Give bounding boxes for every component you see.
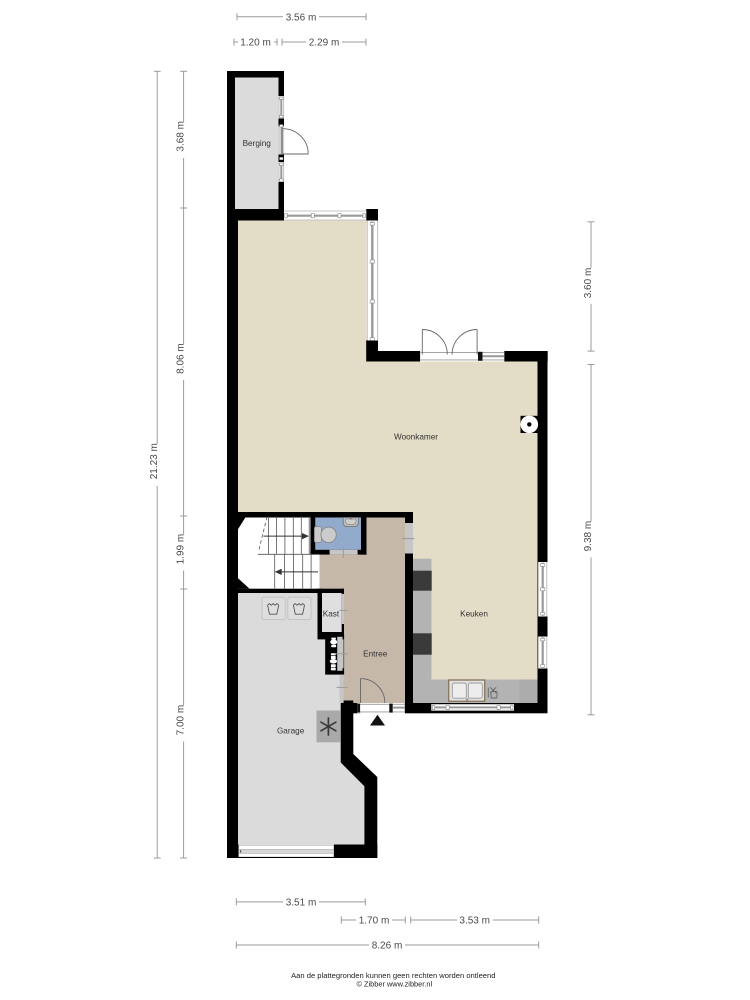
svg-text:1.70 m: 1.70 m (359, 916, 390, 927)
svg-text:8.06 m: 8.06 m (176, 343, 187, 374)
svg-text:Woonkamer: Woonkamer (394, 433, 438, 442)
svg-text:© Zibber www.zibber.nl: © Zibber www.zibber.nl (356, 980, 432, 989)
svg-text:3.51 m: 3.51 m (286, 897, 317, 908)
svg-text:8.26 m: 8.26 m (372, 941, 403, 952)
svg-text:1.20 m: 1.20 m (240, 38, 271, 49)
svg-text:1.99 m: 1.99 m (176, 534, 187, 565)
svg-text:2.29 m: 2.29 m (309, 38, 340, 49)
svg-text:7.00 m: 7.00 m (176, 705, 187, 736)
svg-text:3.60 m: 3.60 m (583, 268, 594, 299)
svg-text:Entree: Entree (363, 650, 388, 659)
svg-text:Aan de plattegronden kunnen ge: Aan de plattegronden kunnen geen rechten… (291, 971, 495, 980)
svg-text:3.53 m: 3.53 m (459, 916, 490, 927)
svg-text:Garage: Garage (277, 727, 305, 736)
svg-text:Berging: Berging (243, 139, 272, 148)
svg-text:Keuken: Keuken (460, 609, 488, 618)
svg-text:21.23 m: 21.23 m (149, 443, 160, 479)
svg-text:Kast: Kast (323, 610, 340, 619)
svg-text:3.68 m: 3.68 m (176, 121, 187, 152)
svg-text:9.38 m: 9.38 m (583, 521, 594, 552)
svg-text:3.56 m: 3.56 m (286, 12, 317, 23)
